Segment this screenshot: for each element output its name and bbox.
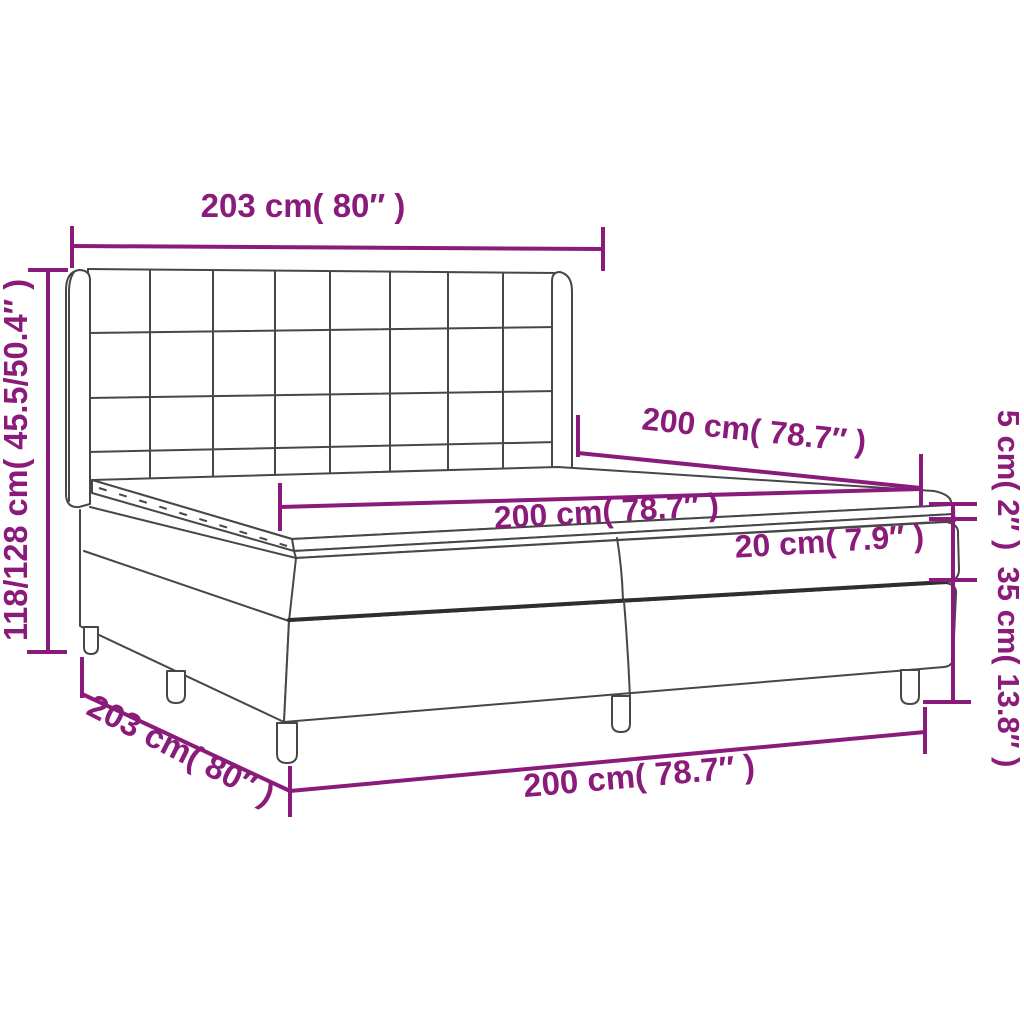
bed-dimension-diagram: 203 cm( 80″ ) 118/128 cm( 45.5/50.4″ ) 2… bbox=[0, 0, 1024, 1024]
dim-headboard-width-label: 203 cm( 80″ ) bbox=[201, 187, 406, 224]
dim-base-height-label: 35 cm( 13.8″ ) bbox=[991, 567, 1024, 768]
dim-headboard-width-line bbox=[72, 246, 603, 249]
dim-total-height-label: 118/128 cm( 45.5/50.4″ ) bbox=[0, 279, 34, 641]
bed-leg bbox=[901, 670, 919, 704]
bed-leg bbox=[84, 627, 98, 654]
headboard-panel bbox=[88, 269, 558, 478]
bed-leg bbox=[612, 696, 630, 732]
bed-dimension-diagram-page: 203 cm( 80″ ) 118/128 cm( 45.5/50.4″ ) 2… bbox=[0, 0, 1024, 1024]
headboard-right-wing bbox=[552, 272, 572, 470]
headboard-left-wing bbox=[66, 270, 90, 507]
dim-headboard-width: 203 cm( 80″ ) bbox=[72, 187, 603, 271]
bed-leg bbox=[277, 723, 297, 763]
dim-base-length-label: 200 cm( 78.7″ ) bbox=[522, 747, 757, 804]
headboard-grid-horizontals bbox=[88, 327, 558, 452]
bed-leg bbox=[167, 671, 185, 703]
dim-base-length: 200 cm( 78.7″ ) bbox=[290, 707, 925, 817]
dim-topper-height-label: 5 cm( 2″ ) bbox=[991, 410, 1024, 551]
dim-bed-length-top-label: 200 cm( 78.7″ ) bbox=[640, 400, 868, 459]
dim-total-height: 118/128 cm( 45.5/50.4″ ) bbox=[0, 270, 68, 652]
